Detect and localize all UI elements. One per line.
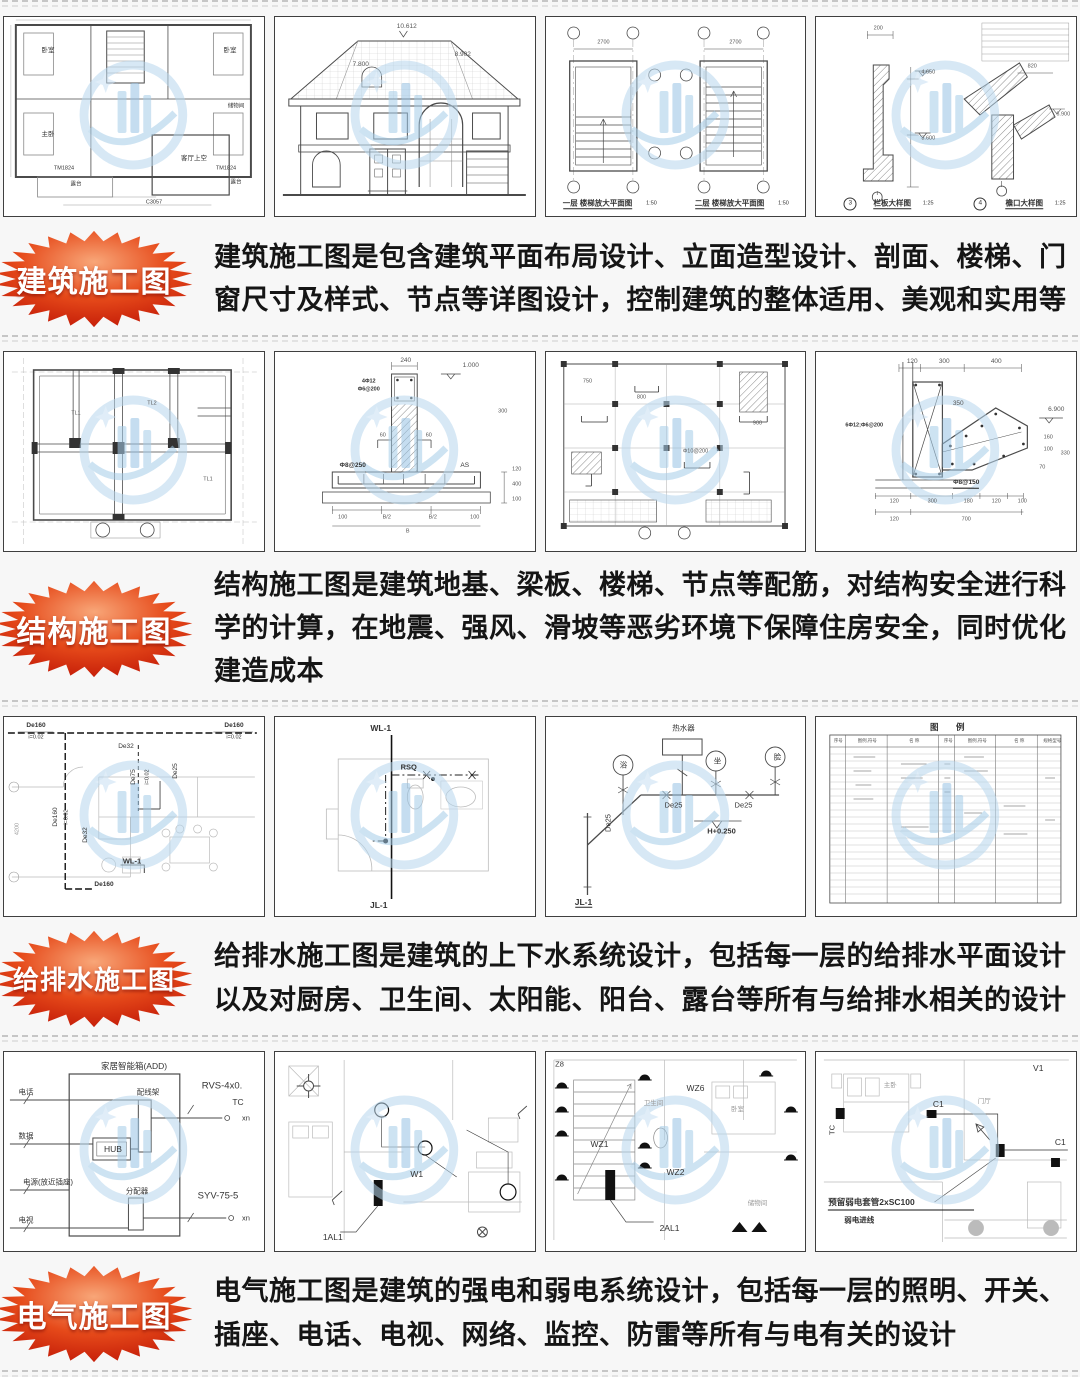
drawing-label: C3057	[146, 200, 162, 206]
cable-label: xn	[242, 1214, 250, 1222]
line-label: 数据	[19, 1132, 34, 1140]
thumb-second-floor-plan: 卧室 卧室 主卧 储物间 客厅上空 露台 露台 TM1824 TM1824 C3…	[3, 16, 265, 217]
drawing-label: Φ8@150	[953, 480, 979, 489]
drawing-caption-scale: 1:25	[1055, 201, 1066, 207]
legend-header: 序号	[834, 738, 843, 743]
device-label: 分配器	[126, 1187, 149, 1195]
watermark-logo-icon	[625, 1100, 724, 1200]
drawing-caption-scale: 1:25	[923, 201, 934, 207]
watermark-logo-icon	[84, 65, 183, 165]
legend-header: 图例,符号	[858, 738, 877, 743]
section-plumbing: De160 i=0.02 De160 i=0.02 De32 De75 i=0.…	[0, 707, 1080, 1042]
level-label: H+0.250	[707, 827, 736, 835]
drawing-label: 3.600	[921, 136, 935, 142]
section-description: 结构施工图是建筑地基、梁板、楼梯、节点等配筋，对结构安全进行科学的计算，在地震、…	[214, 564, 1070, 694]
pipe-label: JL-1	[575, 897, 592, 908]
pipe-label: De160	[26, 722, 45, 729]
room-label: 卫生间	[644, 1100, 664, 1107]
drawing-label: AS	[460, 463, 469, 470]
drawing-label: 120	[890, 499, 899, 505]
device-label: 家居智能箱(ADD)	[101, 1061, 167, 1070]
thumb-foundation-plan: TL1 TL2 TL1	[3, 351, 265, 552]
drawing-label: 400	[991, 359, 1002, 366]
pipe-label: i=0.02	[145, 769, 151, 784]
legend-header: 名 称	[1014, 738, 1024, 743]
drawing-label: 6Φ12;Φ6@200	[845, 423, 883, 429]
thumb-front-elevation: 10.612 8.902 7.800	[274, 16, 536, 217]
section-structural: TL1 TL2 TL1	[0, 342, 1080, 707]
drawing-label: 700	[962, 517, 971, 523]
thumbnail-row-plumbing: De160 i=0.02 De160 i=0.02 De32 De75 i=0.…	[0, 707, 1080, 927]
drawing-label: 100	[1018, 499, 1027, 505]
pipe-label: De160	[224, 722, 243, 729]
drawing-label: 330	[1061, 451, 1070, 457]
pipe-label: De25	[665, 801, 683, 809]
circuit-label: TC	[829, 1125, 837, 1135]
section-badge-electrical: 电气施工图	[0, 1264, 198, 1364]
thumbnail-row-structural: TL1 TL2 TL1	[0, 342, 1080, 562]
legend-title: 图	[930, 722, 939, 731]
drawing-label: TL2	[147, 401, 156, 407]
watermark-logo-icon	[84, 400, 183, 500]
drawing-label: 750	[583, 379, 592, 385]
description-row-electrical: 电气施工图 电气施工图是建筑的强电和弱电系统设计，包括每一层的照明、开关、插座、…	[0, 1262, 1080, 1370]
description-row-plumbing: 给排水施工图 给排水施工图是建筑的上下水系统设计，包括每一层的给排水平面设计以及…	[0, 927, 1080, 1035]
pipe-label: i=0.02	[226, 735, 241, 741]
legend-header: 图例,符号	[968, 738, 987, 743]
pipe-label: De32	[83, 827, 90, 843]
dashed-separator	[2, 0, 1078, 7]
section-description: 电气施工图是建筑的强电和弱电系统设计，包括每一层的照明、开关、插座、电话、电视、…	[214, 1270, 1070, 1356]
drawing-label: 8.902	[455, 52, 471, 59]
watermark-logo-icon	[355, 1100, 454, 1200]
thumb-legend-table: 图 例 序号 图例,符号 名 称 序号 图例,符号 名 称 规格型号	[815, 716, 1077, 917]
drawing-label: 70	[1039, 465, 1045, 471]
drawing-label: 300	[939, 359, 950, 366]
cable-label: RVS-4x0.	[202, 1081, 242, 1091]
pipe-label: De75	[131, 769, 138, 785]
drawing-label: 240	[400, 358, 411, 365]
circuit-label: WZ2	[667, 1167, 685, 1176]
cable-label: xn	[242, 1114, 250, 1122]
drawing-label: 2700	[729, 40, 741, 46]
line-label: 电话	[19, 1088, 34, 1096]
badge-label: 结构施工图	[0, 579, 198, 679]
device-label: HUB	[104, 1144, 122, 1153]
section-badge-architectural: 建筑施工图	[0, 229, 198, 329]
note-label: 预留弱电套管2xSC100	[828, 1197, 914, 1206]
drawing-label: 6.900	[1056, 112, 1070, 118]
thumb-cornice-reinforcement-detail: 120 300 400 350 6.900 160 100 330 70 6Φ1…	[815, 351, 1077, 552]
watermark-logo-icon	[84, 1100, 183, 1200]
badge-label: 建筑施工图	[0, 229, 198, 329]
drawing-label: 4200	[15, 822, 21, 834]
room-label: 储物间	[748, 1200, 768, 1207]
drawing-caption: 二层 楼梯放大平面图	[695, 199, 765, 209]
line-label: 电视	[19, 1216, 34, 1224]
circuit-label: C1	[1055, 1137, 1066, 1146]
drawing-label: 10.612	[397, 24, 417, 31]
drawing-label: 350	[953, 401, 964, 408]
cable-label: SYV-75-5	[198, 1191, 239, 1201]
drawing-label: 卧室	[42, 48, 55, 55]
drawing-label: 300	[498, 409, 507, 415]
thumb-detail-drawings: 200 4.650 3.600 820 6.900 3 栏板大样图 1:25 4…	[815, 16, 1077, 217]
device-label: 配线架	[137, 1088, 160, 1096]
thumb-bathroom-piping-plan: WL-1 RSQ JL-1	[274, 716, 536, 917]
drawing-label: 4Φ12	[362, 379, 376, 385]
pipe-label: RSQ	[401, 763, 417, 771]
pipe-label: De25	[735, 801, 753, 809]
legend-header: 规格型号	[1043, 738, 1061, 743]
watermark-logo-icon	[896, 400, 995, 500]
drawing-label: 120	[992, 499, 1001, 505]
pipe-label: i=0.02	[28, 735, 43, 741]
drawing-label: 6.900	[1048, 407, 1064, 414]
section-electrical: 家居智能箱(ADD) 配线架 HUB 分配器 电话 数据 电源(放近插座) 电视…	[0, 1042, 1080, 1377]
circuit-label: V1	[1033, 1063, 1043, 1072]
thumb-piping-riser-diagram: 热水器 浴 坐 脸 De25 De25 De25 H+0.250 JL-1	[545, 716, 807, 917]
drawing-label: 7.800	[353, 62, 369, 69]
thumb-smart-home-wiring-diagram: 家居智能箱(ADD) 配线架 HUB 分配器 电话 数据 电源(放近插座) 电视…	[3, 1051, 265, 1252]
legend-title: 例	[956, 722, 965, 731]
circuit-label: C1	[933, 1099, 944, 1108]
pipe-label: i=0.02	[64, 809, 70, 824]
circuit-label: W1	[410, 1169, 423, 1178]
fixture-label: 浴	[620, 761, 628, 769]
drawing-label: 2700	[597, 40, 609, 46]
line-label: 电源(放近插座)	[23, 1178, 73, 1186]
drawing-label: 1.000	[463, 363, 479, 370]
section-description: 给排水施工图是建筑的上下水系统设计，包括每一层的给排水平面设计以及对厨房、卫生间…	[214, 935, 1070, 1021]
watermark-logo-icon	[355, 765, 454, 865]
drawing-label: Φ6@200	[358, 387, 380, 393]
drawing-label: 800	[637, 395, 646, 401]
dashed-separator	[2, 335, 1078, 342]
detail-number-bubble: 4	[974, 198, 987, 211]
badge-label: 给排水施工图	[0, 929, 198, 1029]
thumb-slab-reinforcement-plan: 750 800 900 Φ10@200	[545, 351, 807, 552]
drawing-label: 客厅上空	[181, 156, 207, 163]
thumb-drainage-plan: De160 i=0.02 De160 i=0.02 De32 De75 i=0.…	[3, 716, 265, 917]
section-description: 建筑施工图是包含建筑平面布局设计、立面造型设计、剖面、楼梯、门窗尺寸及样式、节点…	[214, 236, 1070, 322]
circuit-label: Z8	[555, 1060, 564, 1068]
circuit-label: WZ6	[687, 1083, 705, 1092]
dashed-separator	[2, 1035, 1078, 1042]
drawing-label: 300	[928, 499, 937, 505]
drawing-label: TL1	[71, 411, 80, 417]
drawing-label: 主卧	[42, 132, 55, 139]
drawing-label: B	[406, 529, 410, 535]
pipe-label: WL-1	[123, 857, 141, 865]
pipe-label: WL-1	[370, 723, 391, 732]
thumb-lighting-plan: 1AL1 W1	[274, 1051, 536, 1252]
drawing-label: 储物间	[228, 104, 245, 110]
thumb-foundation-detail: 240 1.000 4Φ12 Φ6@200 Φ8@250 AS 60 60 30…	[274, 351, 536, 552]
watermark-logo-icon	[625, 65, 724, 165]
pipe-label: De25	[173, 763, 180, 779]
thumb-socket-plan: Z8 WZ1 WZ6 WZ2 2AL1 卫生间 卧室 储物间	[545, 1051, 807, 1252]
drawing-label: TM1824	[216, 166, 236, 172]
description-row-architectural: 建筑施工图 建筑施工图是包含建筑平面布局设计、立面造型设计、剖面、楼梯、门窗尺寸…	[0, 227, 1080, 335]
drawing-caption: 一层 楼梯放大平面图	[563, 199, 633, 209]
drawing-label: TM1824	[54, 166, 74, 172]
description-row-structural: 结构施工图 结构施工图是建筑地基、梁板、楼梯、节点等配筋，对结构安全进行科学的计…	[0, 562, 1080, 700]
fixture-label: 坐	[714, 757, 722, 765]
drawing-label: 200	[874, 26, 883, 32]
drawing-label: 820	[1028, 64, 1037, 70]
circuit-label: 2AL1	[660, 1223, 680, 1232]
drawing-label: B/2	[383, 515, 391, 521]
pipe-label: De25	[604, 814, 612, 832]
thumbnail-row-electrical: 家居智能箱(ADD) 配线架 HUB 分配器 电话 数据 电源(放近插座) 电视…	[0, 1042, 1080, 1262]
drawing-caption: 栏板大样图	[874, 199, 912, 209]
drawing-label: 4.650	[921, 70, 935, 76]
pipe-label: De32	[118, 743, 134, 750]
drawing-label: 露台	[70, 182, 81, 188]
drawing-label: 400	[512, 482, 521, 488]
drawing-label: Φ8@250	[340, 463, 366, 470]
drawing-label: 160	[1044, 435, 1053, 441]
pipe-label: De160	[53, 807, 60, 826]
watermark-logo-icon	[625, 765, 724, 865]
drawing-label: 100	[1044, 447, 1053, 453]
note-label: 弱电进线	[844, 1216, 874, 1224]
drawing-label: 120	[890, 517, 899, 523]
circuit-label: 1AL1	[323, 1232, 343, 1241]
room-label: 门厅	[978, 1098, 991, 1105]
watermark-logo-icon	[625, 400, 724, 500]
detail-number-bubble: 3	[844, 198, 857, 211]
thumb-stair-enlarged-plans: 2700 2700 一层 楼梯放大平面图 1:50 二层 楼梯放大平面图 1:5…	[545, 16, 807, 217]
drawing-label: 60	[426, 433, 432, 439]
pipe-label: De160	[94, 881, 113, 888]
thumb-weak-current-plan: 主卧 V1 C1 TC C1 门厅 预留弱电套管2xSC100 弱电进线	[815, 1051, 1077, 1252]
dashed-separator	[2, 700, 1078, 707]
drawing-label: 120	[512, 467, 521, 473]
fixture-label: 脸	[774, 753, 782, 761]
room-label: 主卧	[884, 1082, 897, 1089]
watermark-logo-icon	[896, 1100, 995, 1200]
drawing-label: 100	[338, 515, 347, 521]
promo-page: 卧室 卧室 主卧 储物间 客厅上空 露台 露台 TM1824 TM1824 C3…	[0, 0, 1080, 1377]
legend-header: 名 称	[909, 738, 919, 743]
drawing-label: 120	[907, 359, 918, 366]
section-architectural: 卧室 卧室 主卧 储物间 客厅上空 露台 露台 TM1824 TM1824 C3…	[0, 7, 1080, 342]
drawing-label: Φ10@200	[683, 449, 708, 455]
drawing-label: 60	[380, 433, 386, 439]
drawing-label: B/2	[429, 515, 437, 521]
section-badge-structural: 结构施工图	[0, 579, 198, 679]
drawing-label: 180	[964, 499, 973, 505]
pipe-label: JL-1	[370, 900, 387, 909]
drawing-caption: 檐口大样图	[1006, 199, 1044, 209]
fixture-label: 热水器	[672, 724, 695, 732]
drawing-label: 露台	[230, 180, 241, 186]
watermark-logo-icon	[896, 765, 995, 865]
drawing-label: 900	[753, 421, 762, 427]
legend-header: 序号	[944, 738, 953, 743]
badge-label: 电气施工图	[0, 1264, 198, 1364]
drawing-caption-scale: 1:50	[778, 201, 789, 207]
thumbnail-row-architectural: 卧室 卧室 主卧 储物间 客厅上空 露台 露台 TM1824 TM1824 C3…	[0, 7, 1080, 227]
circuit-label: WZ1	[591, 1139, 609, 1148]
drawing-caption-scale: 1:50	[646, 201, 657, 207]
room-label: 卧室	[731, 1106, 744, 1113]
drawing-label: 卧室	[224, 48, 237, 55]
drawing-label: TL1	[203, 477, 212, 483]
drawing-label: 100	[470, 515, 479, 521]
cable-label: TC	[232, 1097, 243, 1106]
drawing-label: 100	[512, 497, 521, 503]
dashed-separator	[2, 1370, 1078, 1377]
section-badge-plumbing: 给排水施工图	[0, 929, 198, 1029]
